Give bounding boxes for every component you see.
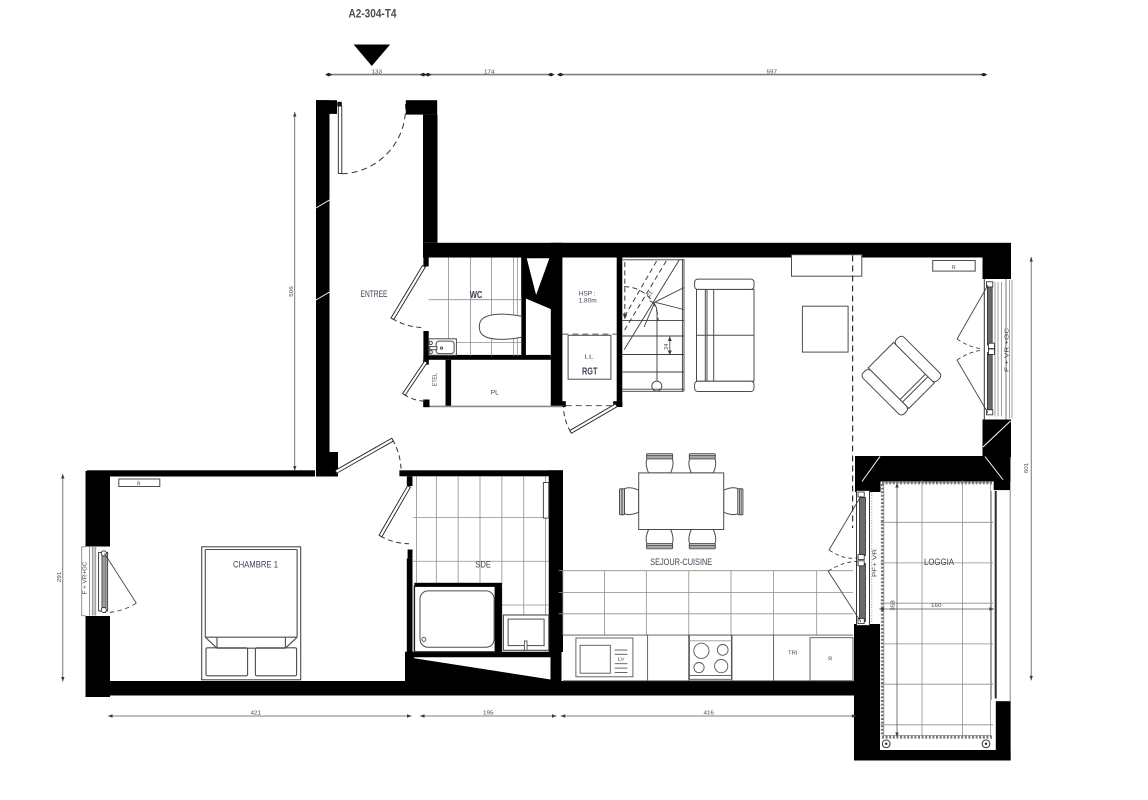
svg-text:601: 601	[1024, 463, 1030, 474]
svg-text:416: 416	[704, 710, 715, 716]
svg-text:RGT: RGT	[582, 367, 598, 378]
svg-text:HSP :: HSP :	[579, 292, 596, 298]
svg-text:WC: WC	[470, 290, 483, 301]
svg-text:F + VR+GC: F + VR+GC	[83, 561, 89, 594]
svg-text:R: R	[952, 265, 956, 271]
svg-text:LV: LV	[618, 657, 626, 663]
svg-text:F + VR +GC: F + VR +GC	[1004, 328, 1010, 372]
svg-text:PL: PL	[491, 391, 500, 397]
svg-text:LOGGIA: LOGGIA	[924, 557, 955, 568]
svg-text:24: 24	[664, 344, 670, 350]
svg-text:SEJOUR-CUISINE: SEJOUR-CUISINE	[650, 557, 712, 568]
svg-text:A2-304-T4: A2-304-T4	[349, 6, 397, 20]
svg-text:1.80m: 1.80m	[579, 299, 597, 305]
svg-text:174: 174	[484, 70, 495, 76]
svg-text:PF+ VR: PF+ VR	[873, 548, 879, 577]
svg-text:358: 358	[891, 600, 897, 611]
svg-text:506: 506	[289, 286, 295, 297]
svg-text:LL: LL	[585, 355, 594, 361]
svg-text:133: 133	[372, 70, 383, 76]
svg-text:597: 597	[767, 70, 778, 76]
svg-text:ENTREE: ENTREE	[361, 289, 388, 300]
svg-text:421: 421	[251, 710, 262, 716]
svg-text:TRI: TRI	[788, 650, 798, 656]
svg-text:195: 195	[483, 710, 494, 716]
svg-text:CHAMBRE 1: CHAMBRE 1	[233, 560, 278, 571]
svg-text:291: 291	[57, 572, 63, 583]
svg-text:R: R	[828, 657, 832, 663]
svg-text:R: R	[137, 481, 141, 487]
svg-text:160: 160	[931, 603, 942, 609]
svg-text:ETEL: ETEL	[433, 373, 439, 386]
svg-text:SDE: SDE	[475, 560, 491, 571]
